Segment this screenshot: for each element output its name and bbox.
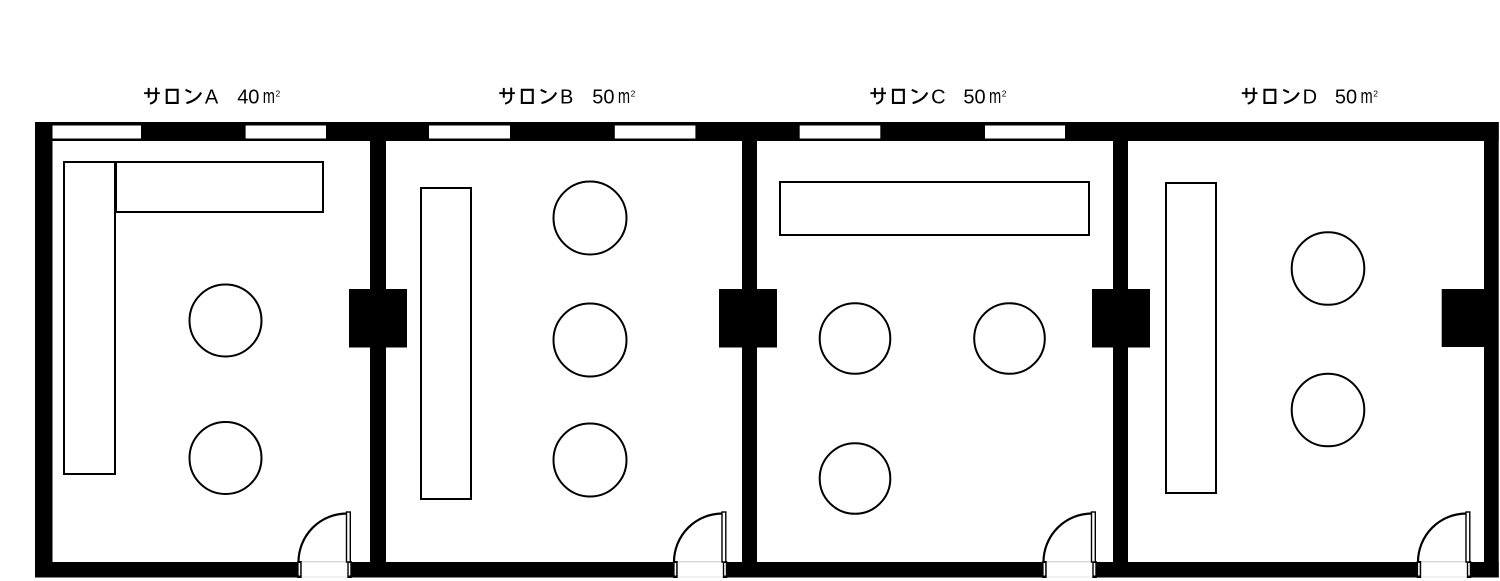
svg-text:40: 40	[237, 87, 259, 109]
svg-text:m: m	[989, 86, 1001, 108]
svg-text:C: C	[931, 87, 945, 109]
svg-text:2: 2	[631, 88, 636, 98]
svg-text:D: D	[1303, 87, 1317, 109]
svg-text:m: m	[1361, 86, 1373, 108]
svg-text:2: 2	[1002, 88, 1007, 98]
svg-text:B: B	[560, 87, 573, 109]
svg-text:50: 50	[592, 87, 614, 109]
svg-text:2: 2	[1373, 88, 1378, 98]
svg-text:A: A	[205, 87, 219, 109]
svg-text:m: m	[618, 86, 630, 108]
svg-text:50: 50	[1335, 87, 1357, 109]
svg-text:2: 2	[276, 88, 281, 98]
svg-text:50: 50	[963, 87, 985, 109]
svg-text:m: m	[263, 86, 275, 108]
